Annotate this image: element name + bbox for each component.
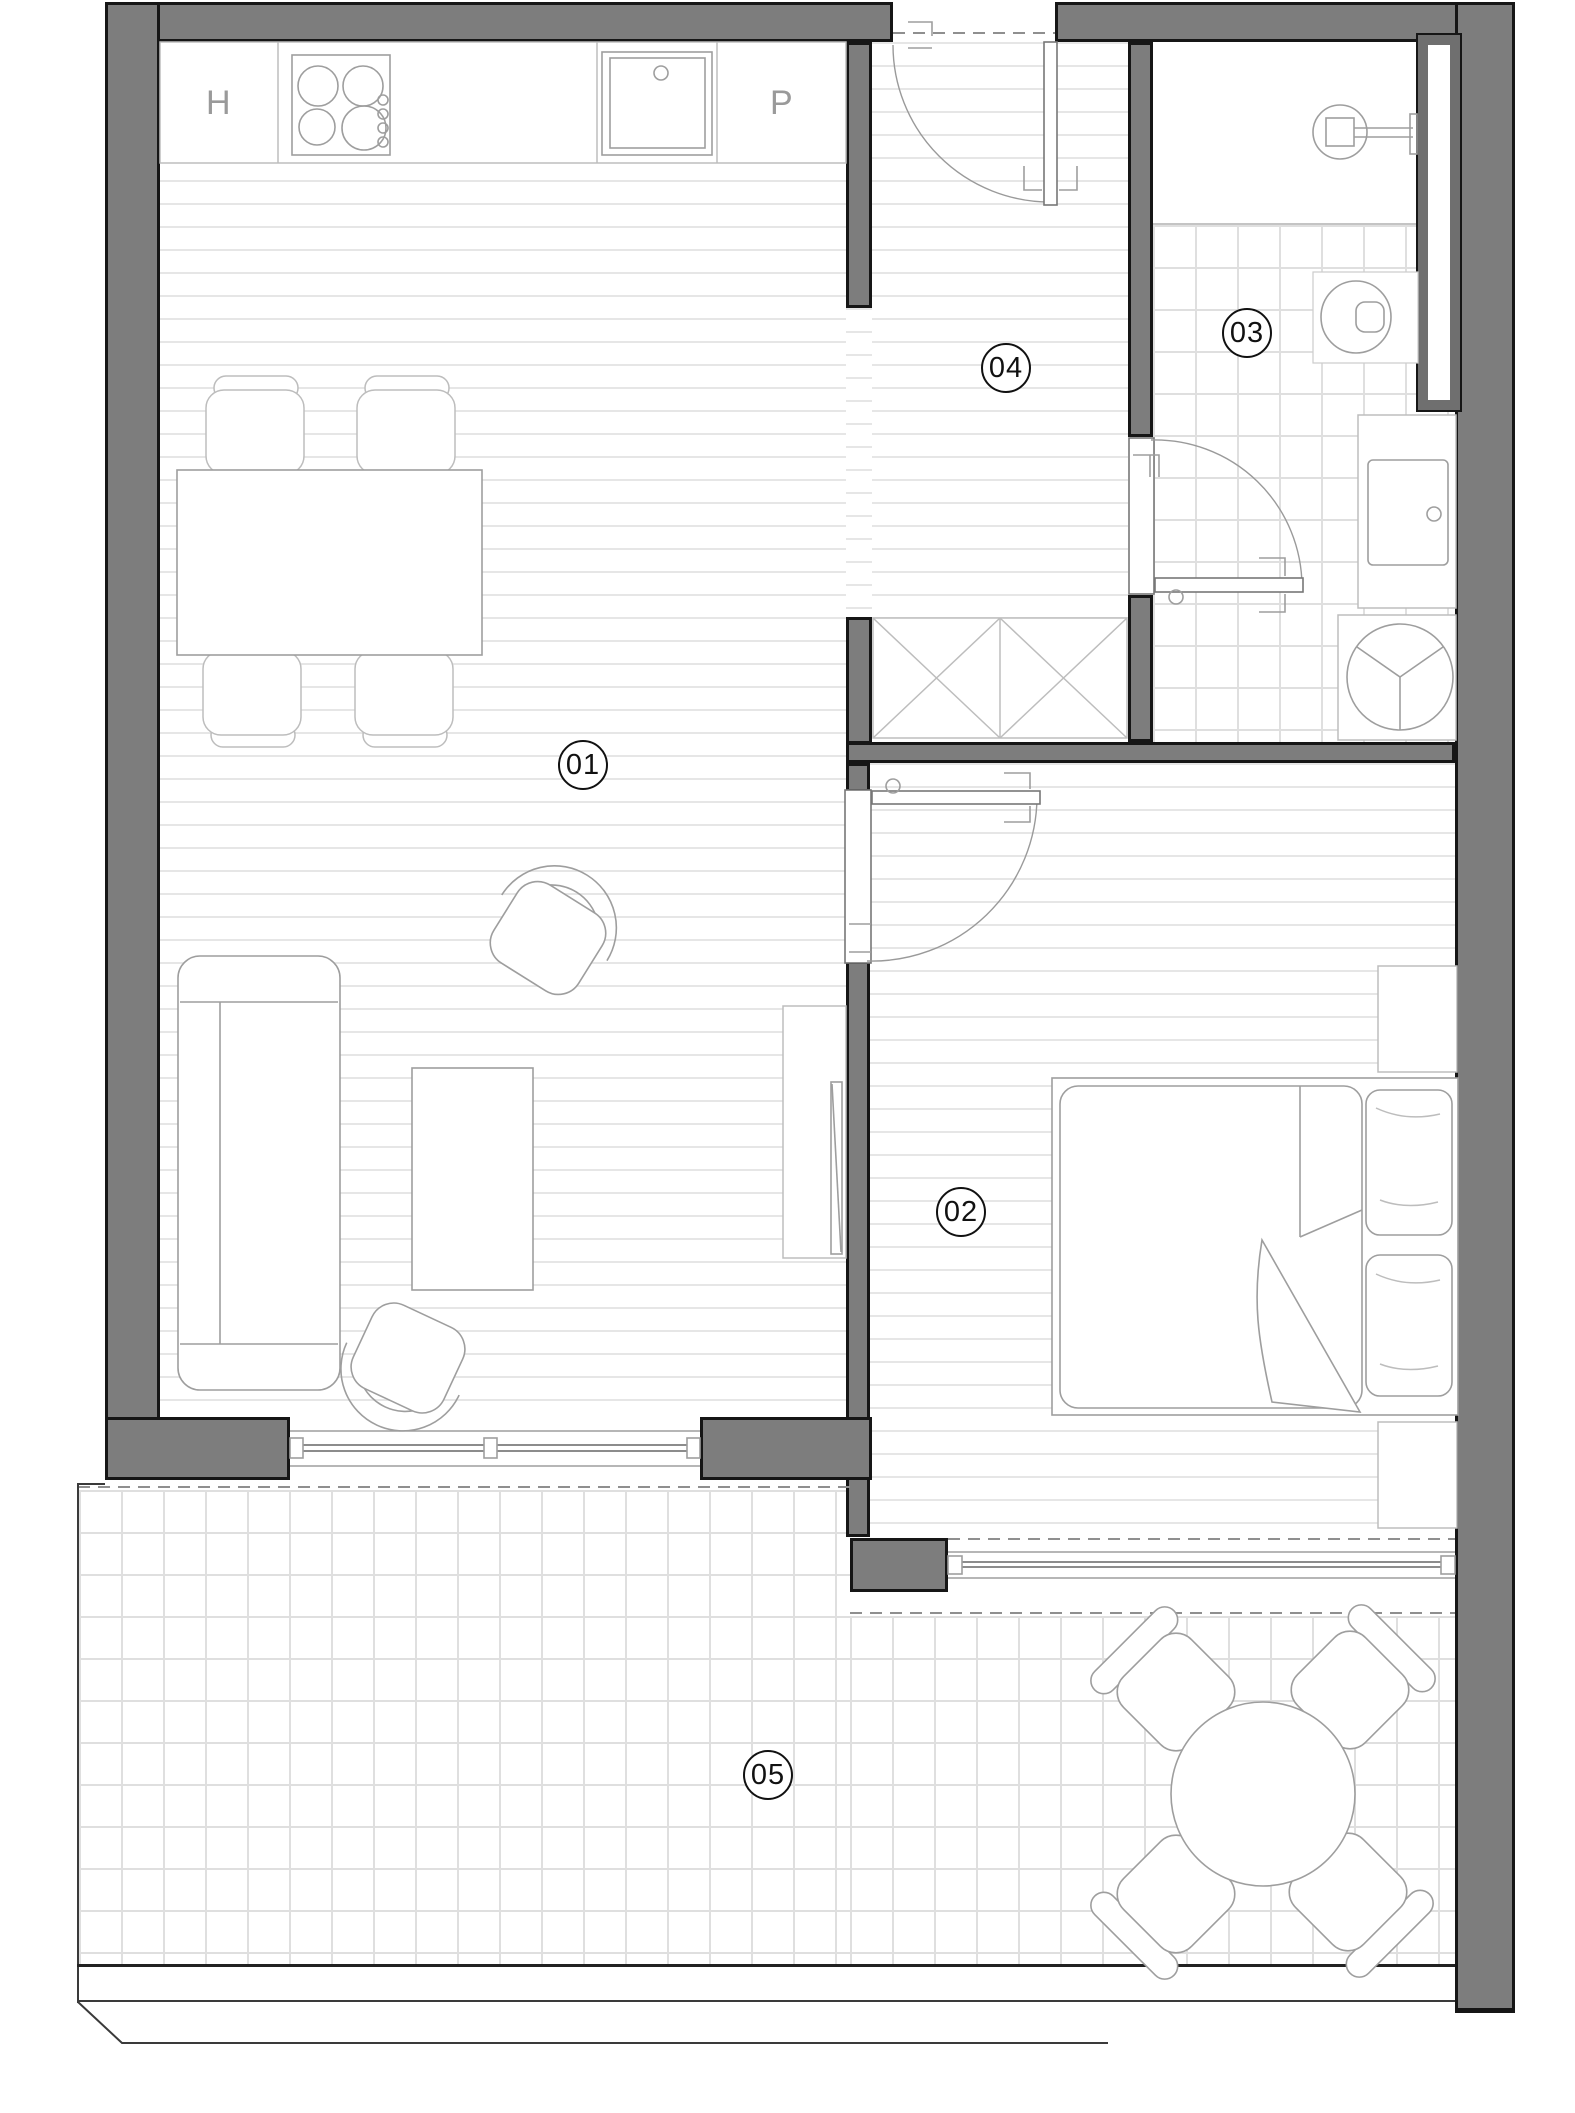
room-label-hall: 04 [981,343,1031,393]
coffee-table [412,1068,533,1290]
room-label-living: 01 [558,740,608,790]
room-label-balcony-text: 05 [751,1759,785,1792]
armchair-lower [321,1290,484,1451]
toilet [1313,272,1418,363]
nightstand-top [1378,966,1457,1072]
bedroom-window [948,1552,1455,1578]
room-label-bathroom-text: 03 [1230,317,1264,350]
room-label-bedroom-text: 02 [944,1196,978,1229]
shower-head [1313,105,1417,159]
tv-bench [783,1006,846,1258]
bedroom-door [845,773,1040,963]
nightstand-bottom [1378,1422,1457,1528]
bathroom-door [1129,438,1303,612]
balcony-table [1171,1702,1355,1886]
room-label-living-text: 01 [566,749,600,782]
balcony-slab-outline [78,2002,1108,2043]
washing-machine [1338,615,1456,740]
room-label-bedroom: 02 [936,1187,986,1237]
hallway-closet [873,618,1127,738]
bathroom-vanity [1358,415,1456,608]
room-label-hall-text: 04 [989,352,1023,385]
room-label-bathroom: 03 [1222,308,1272,358]
sofa [178,956,340,1390]
kitchen-unit-label-left: H [206,84,231,123]
living-room-window [290,1431,700,1466]
bed [1052,1078,1458,1415]
kitchen-unit-label-right: P [770,84,793,123]
kitchen-counter [160,42,846,163]
armchair-upper [471,842,640,1009]
room-label-balcony: 05 [743,1750,793,1800]
dining-set [177,376,482,747]
plan-drawing-layer [0,0,1575,2113]
entrance-door [893,22,1077,205]
floor-plan: H P 01 02 03 04 05 [0,0,1575,2113]
